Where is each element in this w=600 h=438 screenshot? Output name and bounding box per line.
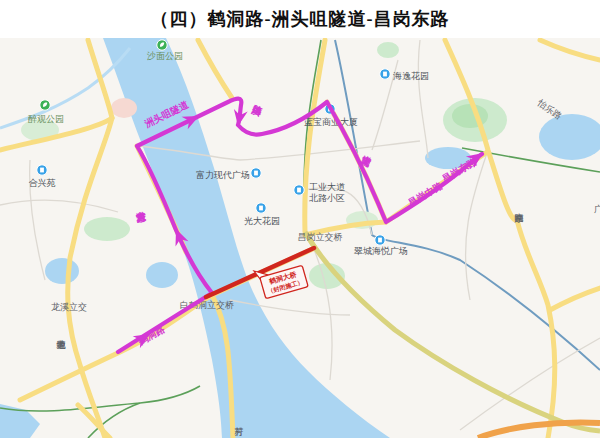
pond	[146, 262, 178, 288]
park-poi-icon[interactable]	[157, 40, 167, 50]
building-poi-icon[interactable]	[380, 69, 390, 79]
building-poi-icon[interactable]	[256, 203, 266, 213]
junction-label: 龙溪立交	[51, 302, 87, 312]
poi-label: 沙面公园	[146, 51, 183, 61]
poi-label: 醉观公园	[28, 114, 64, 124]
commercial-zone	[111, 98, 137, 118]
park-area	[84, 217, 130, 241]
poi-label: 蓝宝商业大厦	[304, 117, 358, 127]
poi-label: 翠城海悦广场	[354, 246, 408, 256]
building-poi-icon[interactable]	[251, 168, 261, 178]
map-container: 醉观公园 沙面公园 合兴苑 海逸花园 富力现代广场 蓝宝商业大厦 工业大道 北路…	[0, 38, 600, 438]
pond	[45, 258, 79, 284]
poi-label: 光大花园	[244, 216, 280, 226]
poi-label: 北路小区	[309, 193, 345, 203]
park-poi-icon[interactable]	[40, 100, 50, 110]
building-poi-icon[interactable]	[294, 185, 304, 195]
map-canvas[interactable]: 醉观公园 沙面公园 合兴苑 海逸花园 富力现代广场 蓝宝商业大厦 工业大道 北路…	[0, 38, 600, 438]
building-poi-icon[interactable]	[37, 165, 47, 175]
park-area	[377, 42, 399, 58]
poi-label: 工业大道	[309, 182, 345, 192]
junction-label: 昌岗立交桥	[298, 232, 343, 242]
poi-label: 富力现代广场	[196, 170, 250, 180]
poi-label: 合兴苑	[29, 178, 56, 188]
road-label: 广州	[594, 204, 600, 214]
page-title: （四）鹤洞路-洲头咀隧道-昌岗东路	[0, 0, 600, 38]
poi-label: 海逸花园	[393, 71, 429, 81]
building-poi-icon[interactable]	[375, 235, 385, 245]
